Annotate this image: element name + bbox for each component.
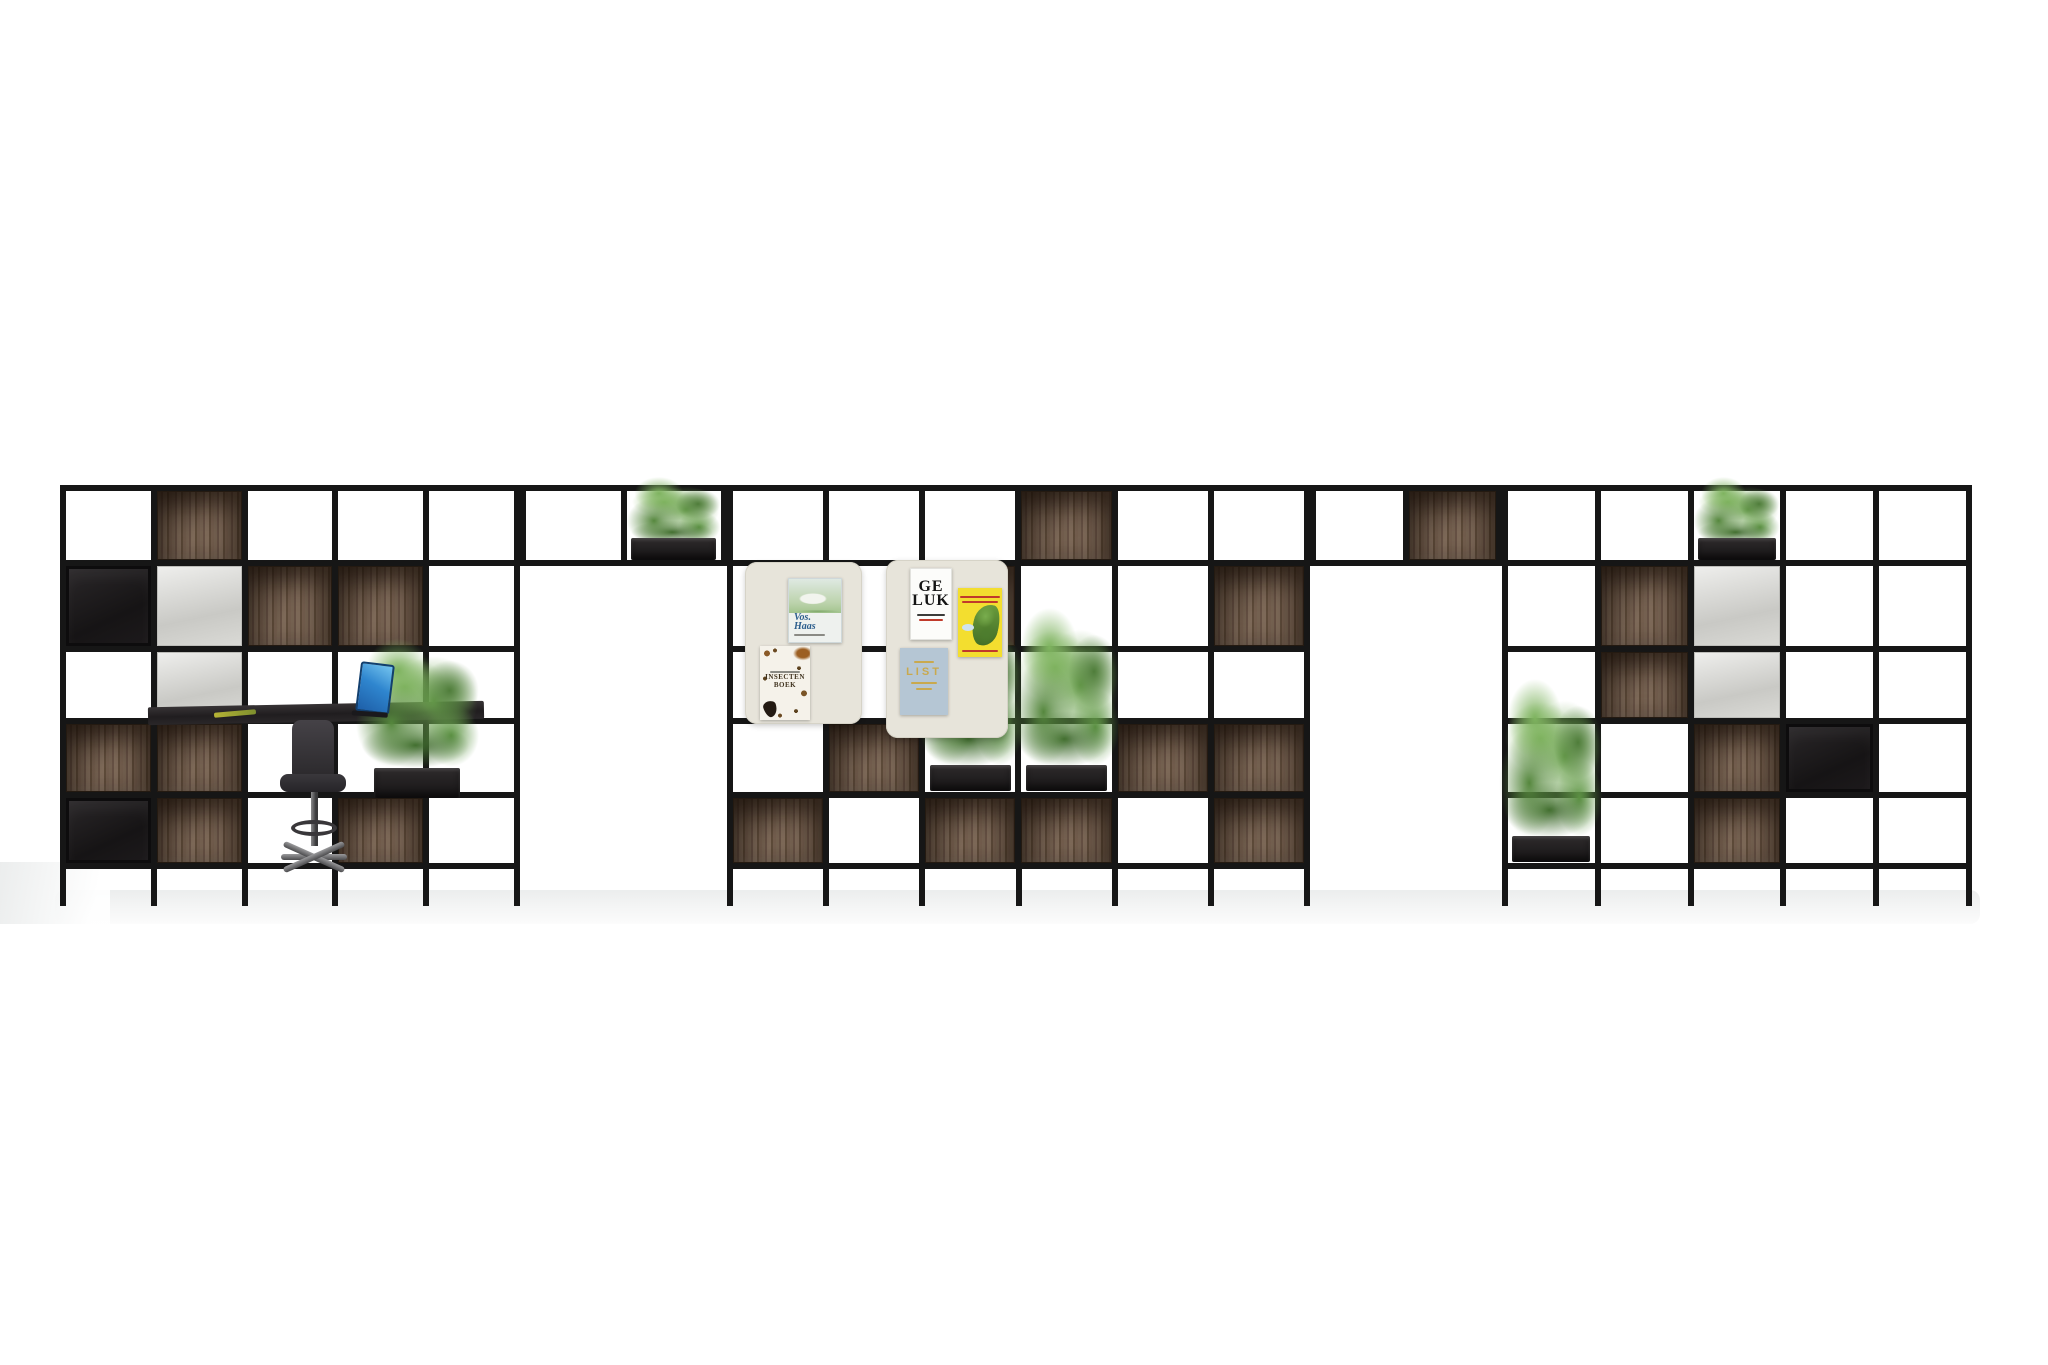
shelf-cell-open bbox=[1118, 566, 1208, 646]
office-stool bbox=[278, 716, 350, 876]
text-bar bbox=[962, 650, 997, 652]
shelf-cell-open bbox=[248, 491, 333, 560]
shelf-cell-planter bbox=[1508, 798, 1595, 863]
shelf-cell-wood bbox=[157, 798, 242, 863]
shelf-leg bbox=[1304, 869, 1310, 906]
shelf-cell-open bbox=[1508, 566, 1595, 646]
shelf-leg bbox=[151, 869, 157, 906]
shelf-leg bbox=[1688, 869, 1694, 906]
poster-caterpillar bbox=[958, 588, 1002, 657]
shelf-cell-open bbox=[1118, 491, 1208, 560]
shelf-cell-open bbox=[526, 491, 621, 560]
shelf-cell-open bbox=[1118, 652, 1208, 718]
shelf-leg bbox=[1873, 869, 1879, 906]
shelf-cell-panel bbox=[1694, 652, 1781, 718]
shelf-cell-wood bbox=[1601, 566, 1688, 646]
shelf-cell-open bbox=[1118, 798, 1208, 863]
shelf-frame-right bbox=[1502, 485, 1972, 869]
shelf-cell-wood bbox=[925, 798, 1015, 863]
poster-title: LIST bbox=[900, 666, 948, 678]
shelf-leg bbox=[423, 869, 429, 906]
text-bar bbox=[914, 661, 933, 663]
shelf-leg bbox=[1112, 869, 1118, 906]
poster-geluk: GE LUK bbox=[910, 568, 952, 640]
shelf-cell-open bbox=[1879, 798, 1966, 863]
floor-shadow-left bbox=[0, 862, 110, 924]
shelf-cell-open bbox=[1879, 724, 1966, 792]
shelf-leg bbox=[242, 869, 248, 906]
shelf-cell-plantbox bbox=[1694, 491, 1781, 560]
shelf-cell-wood bbox=[338, 798, 423, 863]
text-bar bbox=[919, 619, 943, 621]
shelf-cell-wood bbox=[338, 566, 423, 646]
shelf-cell-wood bbox=[157, 724, 242, 792]
shelf-cell-open bbox=[429, 798, 514, 863]
shelf-leg bbox=[919, 869, 925, 906]
planter-box bbox=[631, 538, 716, 560]
planter-box bbox=[1698, 538, 1776, 560]
shelf-leg bbox=[727, 869, 733, 906]
shelf-cell-open bbox=[1214, 491, 1304, 560]
shelf-leg bbox=[1016, 869, 1022, 906]
shelf-cell-open bbox=[1786, 566, 1873, 646]
poster-title: Haas bbox=[789, 622, 841, 631]
plant bbox=[1009, 622, 1124, 772]
shelf-cell-open bbox=[338, 491, 423, 560]
shelf-cell-wood bbox=[1601, 652, 1688, 718]
shelf-cell-open bbox=[829, 491, 919, 560]
shelf-cell-open bbox=[925, 491, 1015, 560]
shelf-cell-open bbox=[1508, 491, 1595, 560]
shelf-cell-wood bbox=[248, 566, 333, 646]
shelf-leg bbox=[1780, 869, 1786, 906]
shelf-cell-wood bbox=[1694, 724, 1781, 792]
text-bar bbox=[911, 682, 937, 684]
poster-illustration bbox=[789, 579, 841, 613]
shelf-cell-open bbox=[1214, 652, 1304, 718]
poster-title: INSECTEN bbox=[760, 673, 810, 681]
shelf-cell-wood bbox=[1118, 724, 1208, 792]
beetle-illustration bbox=[762, 699, 779, 718]
shelf-cell-open bbox=[1879, 652, 1966, 718]
shelf-cell-open bbox=[429, 566, 514, 646]
poster-title: BOEK bbox=[760, 681, 810, 689]
poster-title: LUK bbox=[911, 594, 951, 608]
shelf-cell-open bbox=[1316, 491, 1403, 560]
planter-box bbox=[1026, 765, 1107, 791]
text-bar bbox=[962, 601, 997, 603]
shelf-cell-wood bbox=[1694, 798, 1781, 863]
shelf-leg bbox=[60, 869, 66, 906]
shelf-cell-panel bbox=[1694, 566, 1781, 646]
text-bar bbox=[917, 614, 945, 616]
shelf-frame-bridge-right bbox=[1310, 485, 1502, 566]
shelf-leg bbox=[1208, 869, 1214, 906]
shelf-cell-open bbox=[1786, 652, 1873, 718]
stool-backrest bbox=[292, 720, 334, 778]
plant bbox=[624, 483, 724, 546]
stool-post bbox=[311, 792, 318, 846]
pond-illustration bbox=[962, 624, 974, 631]
stool-footring bbox=[291, 820, 337, 836]
shelf-cell-black bbox=[1786, 724, 1873, 792]
stool-seat bbox=[280, 774, 346, 792]
shelf-cell-open bbox=[733, 491, 823, 560]
shelf-leg bbox=[823, 869, 829, 906]
shelf-cell-planter bbox=[1021, 724, 1111, 792]
shelf-cell-wood bbox=[157, 491, 242, 560]
planter-box bbox=[1512, 836, 1590, 862]
planter-box bbox=[930, 765, 1011, 791]
poster-insectenboek: INSECTEN BOEK bbox=[760, 646, 810, 720]
text-bar bbox=[960, 596, 1000, 598]
shelf-cell-open bbox=[733, 724, 823, 792]
shelf-cell-open bbox=[1786, 491, 1873, 560]
shelf-cell-wood bbox=[1214, 724, 1304, 792]
shelf-cell-open bbox=[66, 491, 151, 560]
shelf-cell-open bbox=[1879, 491, 1966, 560]
shelf-leg bbox=[1595, 869, 1601, 906]
shelf-cell-open bbox=[429, 491, 514, 560]
pinboard-right: GE LUK LIST bbox=[886, 560, 1008, 738]
shelf-leg bbox=[1502, 869, 1508, 906]
shelf-cell-open bbox=[66, 652, 151, 718]
shelf-cell-open bbox=[1601, 724, 1688, 792]
shelf-cell-wood bbox=[1021, 798, 1111, 863]
laptop bbox=[355, 661, 395, 715]
shelf-frame-bridge-left bbox=[520, 485, 727, 566]
shelf-cell-wood bbox=[1214, 566, 1304, 646]
shelf-cell-wood bbox=[66, 724, 151, 792]
shelf-cell-open bbox=[829, 798, 919, 863]
shelf-cell-plantbox bbox=[627, 491, 722, 560]
pinboard-left: Vos. Haas INSECTEN BOEK bbox=[745, 562, 862, 724]
shelf-cell-panel bbox=[157, 566, 242, 646]
shelf-cell-wood bbox=[733, 798, 823, 863]
shelf-cell-open bbox=[1601, 798, 1688, 863]
shelf-cell-open bbox=[1879, 566, 1966, 646]
render-scene: Vos. Haas INSECTEN BOEK GE LUK LIST bbox=[0, 0, 2048, 1365]
shelf-cell-wood bbox=[1214, 798, 1304, 863]
poster-list: LIST bbox=[900, 648, 948, 715]
poster-vos-haas: Vos. Haas bbox=[788, 578, 842, 643]
text-bar bbox=[794, 634, 825, 636]
shelf-cell-open bbox=[1601, 491, 1688, 560]
plant bbox=[1691, 483, 1783, 546]
shelf-cell-open bbox=[1786, 798, 1873, 863]
shelf-cell-wood bbox=[1021, 491, 1111, 560]
shelf-cell-black bbox=[66, 798, 151, 863]
plant bbox=[1496, 693, 1607, 843]
shelf-leg bbox=[1966, 869, 1972, 906]
shelf-cell-wood bbox=[1409, 491, 1496, 560]
shelf-leg bbox=[514, 869, 520, 906]
shelf-cell-black bbox=[66, 566, 151, 646]
text-bar bbox=[916, 688, 933, 690]
planter-box bbox=[374, 768, 460, 798]
